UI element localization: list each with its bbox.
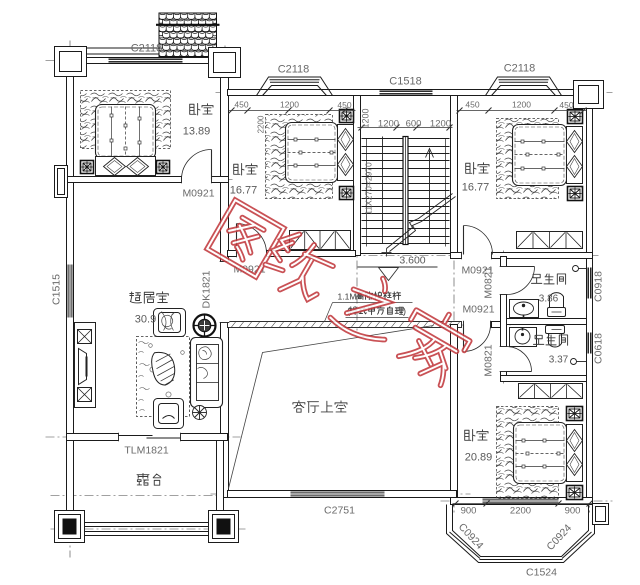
svg-text:3.86: 3.86 [539, 294, 559, 305]
svg-text:TLM1821: TLM1821 [124, 445, 169, 457]
svg-text:450: 450 [465, 100, 479, 110]
svg-text:13.89: 13.89 [183, 126, 211, 138]
svg-text:3.37: 3.37 [549, 355, 569, 366]
svg-text:M0921: M0921 [462, 304, 494, 316]
svg-text:C0618: C0618 [593, 333, 605, 364]
svg-text:900: 900 [565, 506, 581, 517]
svg-text:C2118: C2118 [504, 63, 536, 75]
svg-text:2200: 2200 [257, 115, 266, 133]
svg-text:900: 900 [461, 506, 477, 517]
svg-text:1200: 1200 [280, 100, 299, 110]
svg-text:450: 450 [559, 100, 573, 110]
svg-text:1200: 1200 [512, 100, 531, 110]
svg-text:C2118: C2118 [131, 43, 163, 55]
svg-text:1200: 1200 [430, 119, 451, 130]
svg-text:M0821: M0821 [483, 344, 495, 376]
svg-text:16.77: 16.77 [230, 185, 258, 197]
svg-text:): ) [403, 306, 406, 316]
svg-text:1200: 1200 [361, 108, 371, 128]
svg-text:30.9: 30.9 [135, 314, 156, 326]
svg-text:C1524: C1524 [526, 567, 557, 579]
svg-text:C2751: C2751 [324, 505, 355, 517]
svg-text:3.600: 3.600 [399, 255, 425, 267]
svg-text:20.89: 20.89 [465, 452, 493, 464]
svg-text:C1518: C1518 [389, 76, 421, 88]
svg-text:C1515: C1515 [51, 274, 63, 305]
svg-text:450: 450 [234, 100, 248, 110]
svg-text:M0921: M0921 [182, 188, 214, 200]
svg-text:600: 600 [406, 119, 422, 130]
svg-text:1.1M: 1.1M [338, 292, 357, 302]
svg-text:16.77: 16.77 [462, 182, 490, 194]
svg-text:C2118: C2118 [278, 64, 310, 76]
svg-text:11X270=2970: 11X270=2970 [364, 162, 374, 215]
svg-text:C0918: C0918 [593, 271, 605, 302]
svg-text:450: 450 [337, 100, 351, 110]
svg-text:1200: 1200 [378, 119, 399, 130]
svg-text:2200: 2200 [510, 506, 531, 517]
svg-text:M0821: M0821 [483, 266, 495, 298]
svg-text:DK1821: DK1821 [201, 270, 213, 308]
